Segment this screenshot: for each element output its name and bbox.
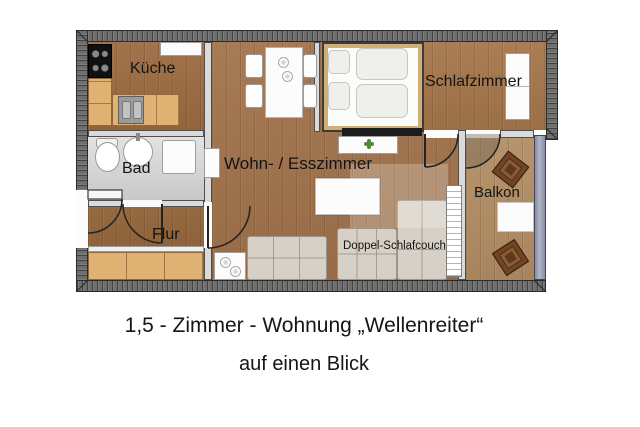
living-radiator xyxy=(446,185,462,277)
hallway-label: Flur xyxy=(152,226,180,244)
plate xyxy=(282,71,293,82)
duvet xyxy=(356,48,408,80)
kitchen-shelf xyxy=(160,42,202,56)
bathroom-tap xyxy=(136,133,140,141)
toilet xyxy=(95,142,120,172)
apartment-floor-plan: Küche Bad Flur Wohn- / Esszimmer Schlafz… xyxy=(76,30,558,292)
sofa-bed-label: Doppel-Schlafcouch xyxy=(343,240,446,252)
plan-title: 1,5 - Zimmer - Wohnung „Wellenreiter“ xyxy=(0,314,624,338)
wall-bedroom-balcony xyxy=(500,130,534,138)
cabinet xyxy=(214,252,246,280)
plan-subtitle: auf einen Blick xyxy=(0,353,624,376)
dining-chair xyxy=(303,84,317,108)
wall-radiator xyxy=(204,148,220,178)
outer-wall-top xyxy=(76,30,558,42)
shower xyxy=(162,140,196,174)
plate xyxy=(278,57,289,68)
kitchen-sink xyxy=(118,96,144,124)
cooktop xyxy=(88,44,112,78)
bedroom-door-opening xyxy=(424,130,458,138)
balcony-door-opening xyxy=(466,130,500,138)
sofa-bed-seat xyxy=(337,228,397,280)
bathroom-door-opening xyxy=(123,200,162,207)
balcony-glass-wall xyxy=(534,135,546,280)
dining-chair xyxy=(245,54,263,78)
outer-wall-left xyxy=(76,30,88,292)
duvet xyxy=(356,84,408,118)
floor-plan-page: { "caption": { "title": "1,5 - Zimmer - … xyxy=(0,0,640,427)
dining-chair xyxy=(245,84,263,108)
outer-wall-bottom xyxy=(76,280,546,292)
hall-living-door-opening xyxy=(204,202,212,248)
wall-kitchen-bath xyxy=(88,130,204,137)
entry-door-opening xyxy=(76,190,88,248)
living-room-label: Wohn- / Esszimmer xyxy=(224,154,372,174)
tv-board xyxy=(342,128,422,136)
pillow xyxy=(328,82,350,110)
bedroom-label: Schlafzimmer xyxy=(425,73,522,91)
plant xyxy=(364,139,374,149)
outer-wall-right xyxy=(546,30,558,140)
kitchen-label: Küche xyxy=(130,60,175,78)
kitchen-counter-left xyxy=(88,78,112,126)
pillow xyxy=(328,50,350,74)
balcony-label: Balkon xyxy=(474,184,520,201)
dining-chair xyxy=(303,54,317,78)
sofa xyxy=(247,236,327,280)
hall-wardrobe xyxy=(88,252,204,280)
bathroom-label: Bad xyxy=(122,160,150,178)
balcony-table xyxy=(497,202,534,232)
